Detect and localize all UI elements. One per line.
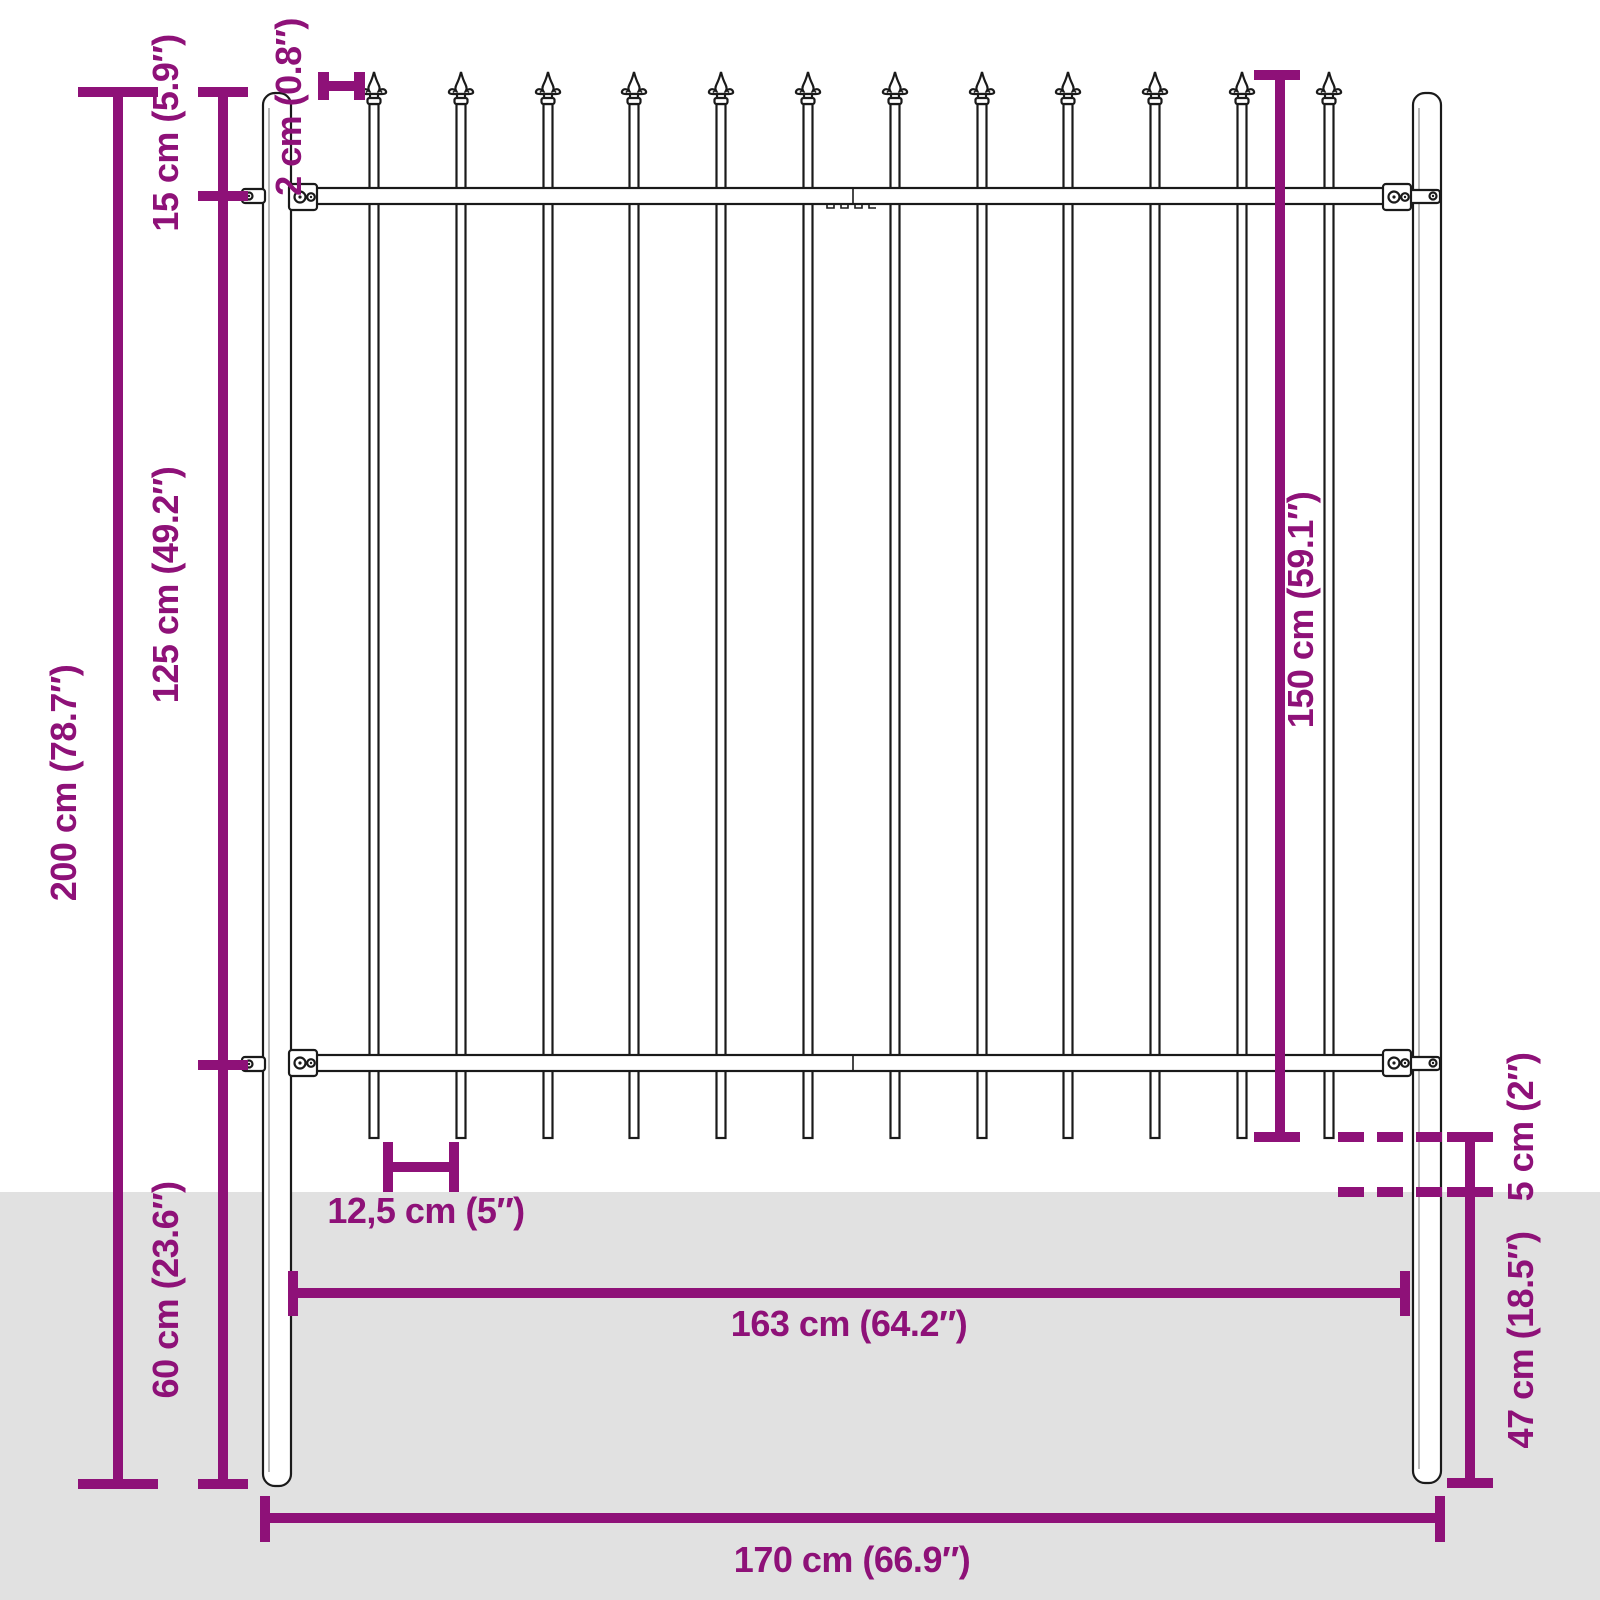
screw-icon: [1392, 1061, 1395, 1064]
picket-with-finial: [1230, 72, 1254, 1138]
picket-with-finial: [622, 72, 646, 1138]
fence-dimension-diagram: 200 cm (78.7″) 15 cm (5.9″) 125 cm (49.2…: [0, 0, 1600, 1600]
dimension-label-panel-height: 150 cm (59.1″): [1280, 492, 1322, 728]
picket-with-finial: [449, 72, 473, 1138]
fence-drawing-svg: [0, 0, 1600, 1600]
screw-icon: [310, 1062, 312, 1064]
pickets-group: [362, 72, 1341, 1138]
picket-with-finial: [883, 72, 907, 1138]
left-post: [263, 93, 291, 1486]
top-rail-joint-serration: [827, 204, 876, 208]
screw-icon: [310, 196, 312, 198]
dimension-label-rail-to-rail-height: 125 cm (49.2″): [145, 467, 187, 703]
picket-with-finial: [970, 72, 994, 1138]
screw-icon: [298, 1061, 301, 1064]
picket-with-finial: [536, 72, 560, 1138]
picket-with-finial: [362, 72, 386, 1138]
bottom-rail: [291, 1055, 1388, 1071]
picket-with-finial: [1056, 72, 1080, 1138]
picket-with-finial: [709, 72, 733, 1138]
dimension-label-panel-width: 163 cm (64.2″): [731, 1303, 967, 1345]
right-post: [1413, 93, 1441, 1483]
top-rail: [291, 188, 1388, 204]
brackets-group: [242, 184, 1440, 1076]
screw-icon: [1392, 195, 1395, 198]
picket-with-finial: [1143, 72, 1167, 1138]
screw-icon: [1404, 196, 1406, 198]
dimension-label-spear-section-height: 15 cm (5.9″): [145, 34, 187, 231]
dimension-label-total-height: 200 cm (78.7″): [43, 665, 85, 901]
screw-icon: [1432, 1062, 1434, 1064]
dimension-label-picket-width: 2 cm (0.8″): [268, 18, 310, 196]
dim-picket-width-marker: [318, 72, 365, 100]
picket-with-finial: [796, 72, 820, 1138]
dimension-label-post-underground-depth: 47 cm (18.5″): [1500, 1232, 1542, 1449]
screw-icon: [248, 1063, 250, 1065]
dimension-label-picket-spacing: 12,5 cm (5″): [327, 1190, 524, 1232]
screw-icon: [248, 195, 250, 197]
screw-icon: [1404, 1062, 1406, 1064]
dim-picket-spacing-bracket: [383, 1142, 459, 1192]
dimension-label-post-depth-total: 60 cm (23.6″): [145, 1182, 187, 1399]
screw-icon: [1432, 195, 1434, 197]
dimension-label-total-width: 170 cm (66.9″): [734, 1539, 970, 1581]
dimension-label-ground-clearance: 5 cm (2″): [1500, 1053, 1542, 1202]
